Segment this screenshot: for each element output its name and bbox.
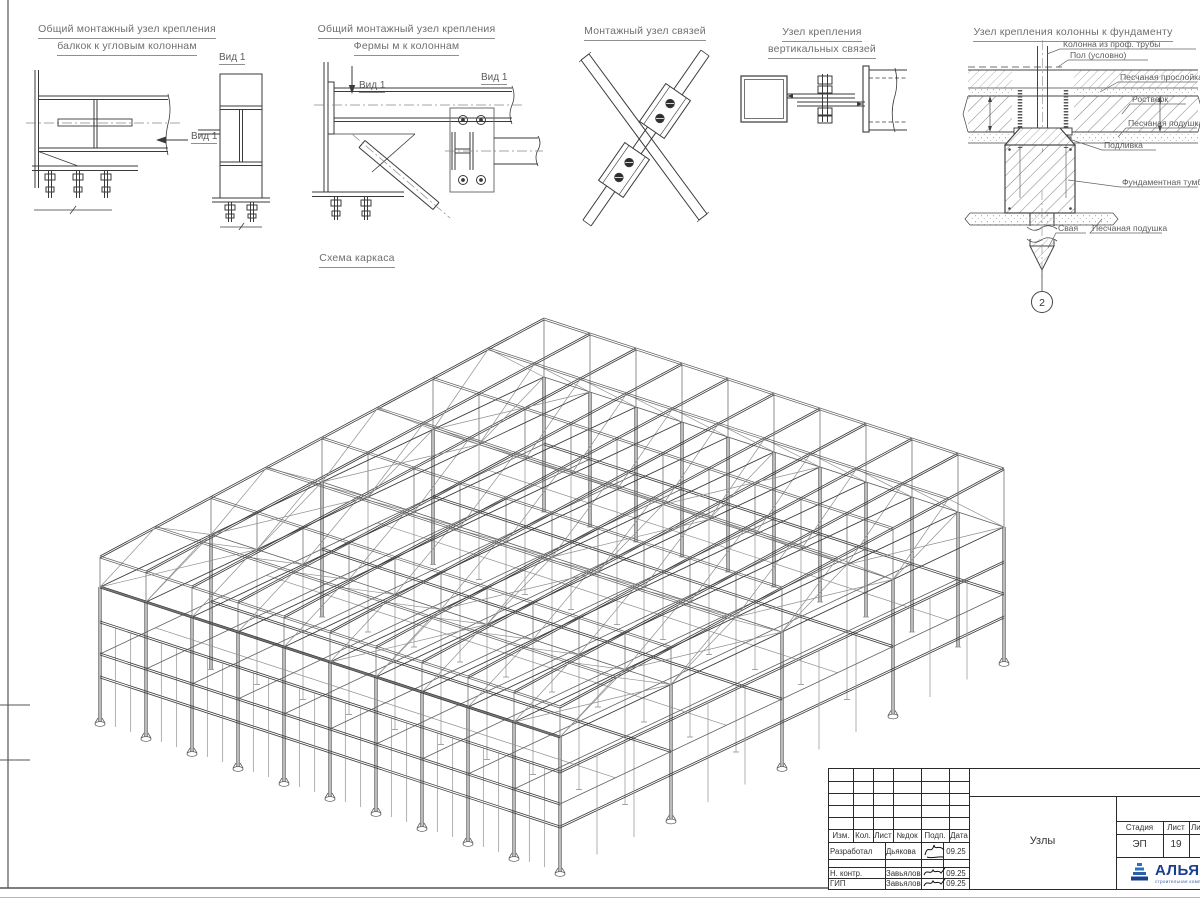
col-podp: Подп. <box>921 831 949 840</box>
row1-role: Н. контр. <box>830 869 885 878</box>
col-data: Дата <box>949 831 969 840</box>
company-subtitle: строительная компания <box>1155 879 1200 884</box>
col-list: Лист <box>873 831 893 840</box>
row2-name: Завьялова <box>886 879 921 888</box>
signature <box>922 878 948 889</box>
stage-header: Стадия <box>1116 823 1163 832</box>
col-kol: Кол. <box>853 831 873 840</box>
title-block: Изм. Кол. Лист №док Подп. Дата Разработа… <box>828 768 1200 890</box>
sheets-header: Листов <box>1191 823 1200 832</box>
sheets-value: 2 <box>1189 839 1200 850</box>
col-izm: Изм. <box>829 831 853 840</box>
row1-name: Завьялова <box>886 869 921 878</box>
row2-role: ГИП <box>830 879 885 888</box>
row0-name: Дьякова <box>886 847 921 856</box>
sheet-header: Лист <box>1163 823 1189 832</box>
signature <box>922 841 948 859</box>
doc-name: Узлы <box>969 835 1116 847</box>
signature <box>922 867 948 878</box>
col-ndok: №док <box>893 831 921 840</box>
frame-schema-drawing <box>0 0 1200 890</box>
drawing-sheet: Общий монтажный узел крепления балкок к … <box>0 0 1200 900</box>
row0-role: Разработал <box>830 847 885 856</box>
sheet-value: 19 <box>1163 839 1189 850</box>
company-logo-icon <box>1129 861 1151 883</box>
stage-value: ЭП <box>1116 839 1163 850</box>
company-logo-text: АЛЬЯНС строительная компания <box>1155 862 1200 884</box>
company-name: АЛЬЯНС <box>1155 862 1200 879</box>
